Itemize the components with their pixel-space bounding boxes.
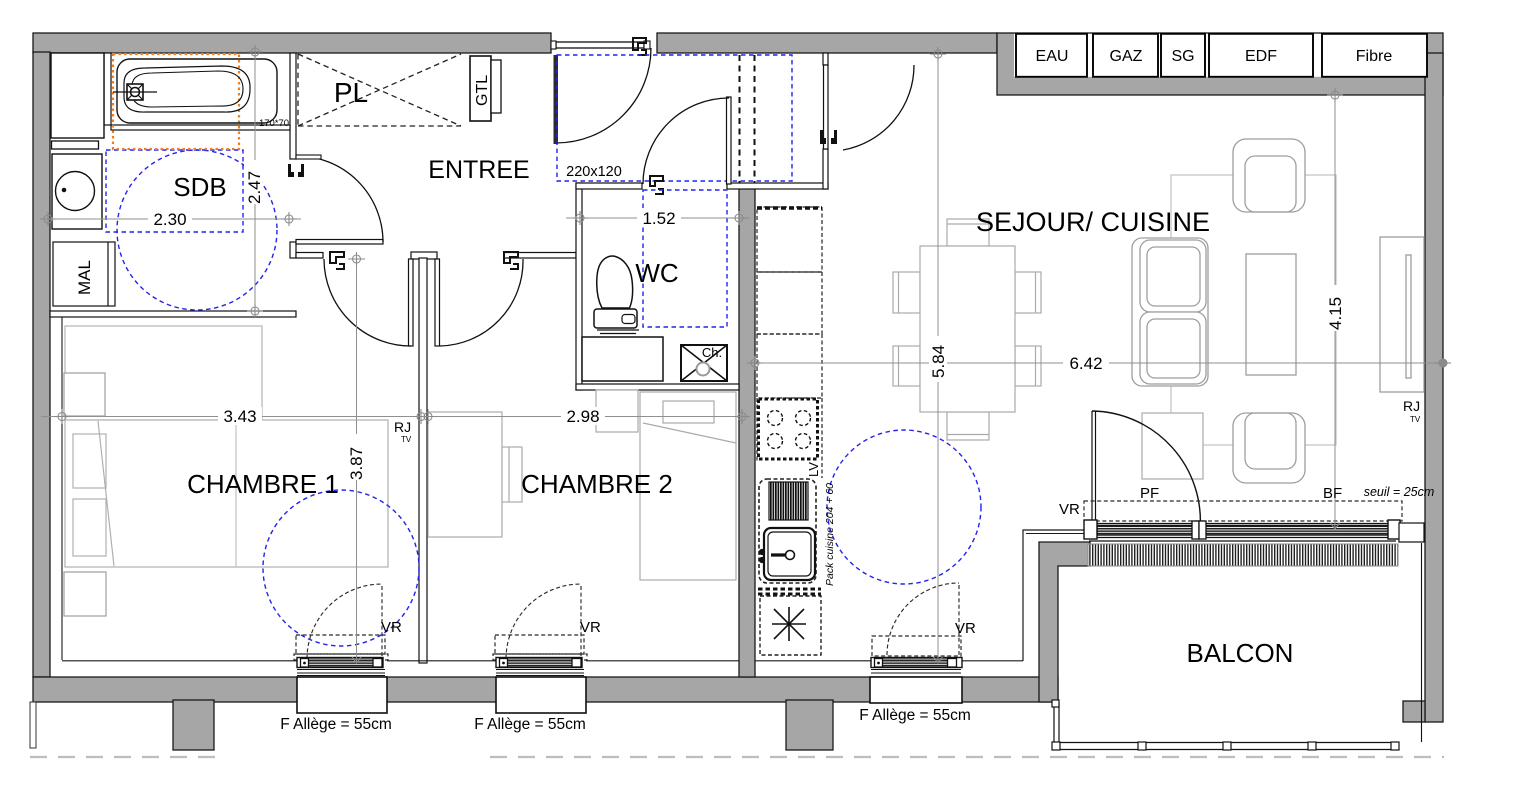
svg-text:seuil = 25cm: seuil = 25cm: [1364, 485, 1435, 499]
svg-text:220x120: 220x120: [566, 164, 622, 180]
svg-text:VR: VR: [580, 619, 601, 636]
svg-text:SEJOUR/ CUISINE: SEJOUR/ CUISINE: [976, 207, 1210, 237]
svg-text:F Allège = 55cm: F Allège = 55cm: [859, 707, 971, 724]
svg-text:EDF: EDF: [1245, 48, 1277, 65]
svg-text:4.15: 4.15: [1326, 297, 1345, 330]
svg-text:3.43: 3.43: [223, 407, 256, 426]
svg-text:1.52: 1.52: [642, 209, 675, 228]
svg-text:WC: WC: [635, 258, 678, 288]
svg-text:TV: TV: [1410, 415, 1421, 424]
svg-text:CHAMBRE 1: CHAMBRE 1: [187, 469, 339, 499]
svg-text:F Allège = 55cm: F Allège = 55cm: [280, 716, 392, 733]
svg-text:CHAMBRE 2: CHAMBRE 2: [521, 469, 673, 499]
svg-text:Fibre: Fibre: [1356, 48, 1393, 65]
svg-text:EAU: EAU: [1036, 48, 1069, 65]
svg-text:RJ: RJ: [394, 419, 411, 435]
svg-text:6.42: 6.42: [1069, 354, 1102, 373]
svg-text:SG: SG: [1171, 48, 1194, 65]
svg-text:ENTREE: ENTREE: [428, 156, 529, 184]
svg-text:Pack cuisine 204 + 60: Pack cuisine 204 + 60: [824, 483, 836, 586]
svg-text:BF: BF: [1323, 485, 1342, 502]
svg-text:Ch.: Ch.: [702, 345, 722, 360]
svg-text:VR: VR: [1059, 501, 1080, 518]
svg-text:VR: VR: [955, 620, 976, 637]
svg-text:3.87: 3.87: [347, 447, 366, 480]
svg-text:5.84: 5.84: [929, 345, 948, 378]
svg-text:F Allège = 55cm: F Allège = 55cm: [474, 716, 586, 733]
svg-text:SDB: SDB: [173, 172, 226, 202]
svg-text:RJ: RJ: [1403, 398, 1420, 414]
svg-text:PF: PF: [1140, 485, 1159, 502]
svg-text:VR: VR: [381, 619, 402, 636]
svg-text:BALCON: BALCON: [1187, 638, 1294, 668]
svg-text:TV: TV: [401, 435, 412, 444]
svg-text:GTL: GTL: [474, 75, 491, 106]
svg-text:PL: PL: [334, 77, 368, 108]
svg-text:2.30: 2.30: [153, 210, 186, 229]
svg-text:2.98: 2.98: [566, 407, 599, 426]
svg-text:GAZ: GAZ: [1110, 48, 1143, 65]
svg-text:MAL: MAL: [75, 260, 94, 295]
svg-text:170*70: 170*70: [259, 118, 289, 129]
svg-text:2.47: 2.47: [245, 171, 264, 204]
svg-text:LV: LV: [806, 462, 821, 477]
